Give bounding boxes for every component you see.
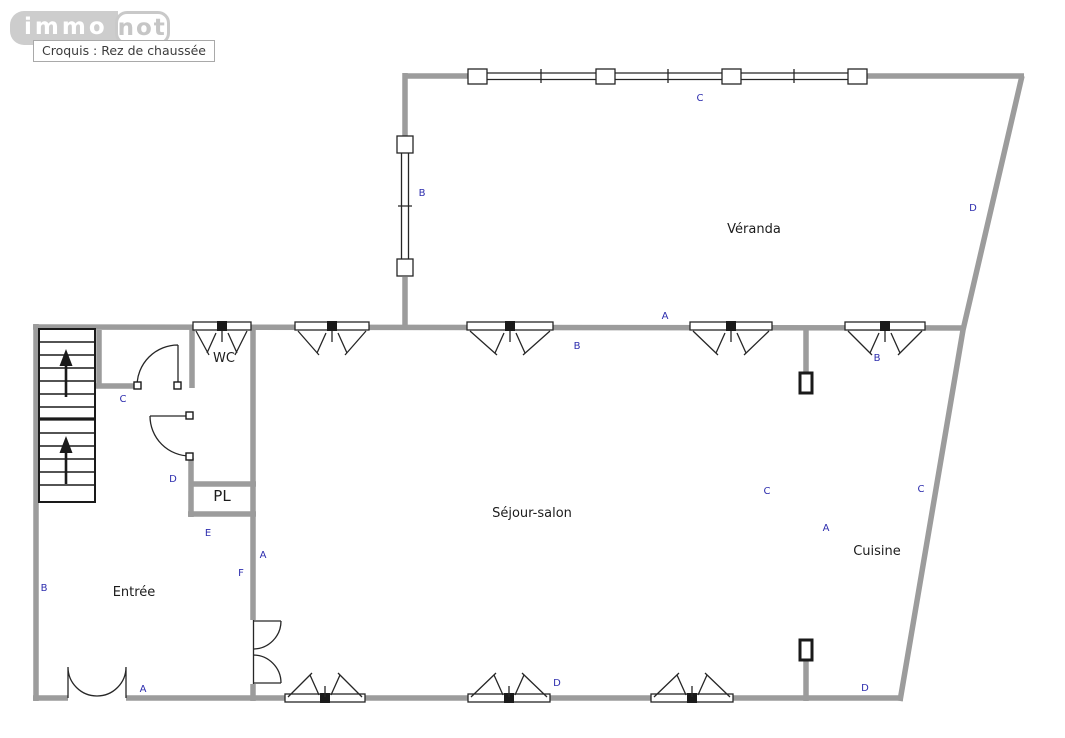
window-bottom-2 <box>468 673 550 703</box>
window-sejour-2 <box>467 321 553 355</box>
floor-plan-page: immo not Croquis : Rez de chaussée <box>0 0 1065 738</box>
window-sejour-1 <box>295 321 369 355</box>
cuisine-partition-caps <box>800 373 812 660</box>
window-bottom-3 <box>651 673 733 703</box>
dim-letter-sejour-north: A <box>662 311 669 322</box>
dim-letter-veranda-left: B <box>419 188 426 199</box>
room-label-cuisine: Cuisine <box>853 544 901 559</box>
door-sejour-double <box>253 620 281 684</box>
dim-letter-entrance-door: A <box>140 684 147 695</box>
dim-letter-sejour-window-left: B <box>574 341 581 352</box>
dim-letter-hall-door: D <box>169 474 177 485</box>
interior-walls <box>96 327 806 701</box>
room-label-wc: WC <box>213 351 235 366</box>
plan-caption: Croquis : Rez de chaussée <box>33 40 215 62</box>
dim-letter-cuisine: A <box>823 523 830 534</box>
dim-letter-bay-top: C <box>697 93 704 104</box>
dim-letter-sejour-east: C <box>764 486 771 497</box>
dim-letter-bottom-center: D <box>553 678 561 689</box>
room-label-pl: PL <box>213 487 231 505</box>
partition-cap-bottom <box>800 640 812 660</box>
window-cuisine-north <box>845 321 925 355</box>
dim-letter-right-wall-upper: D <box>969 203 977 214</box>
room-label-sejour: Séjour-salon <box>492 506 572 521</box>
dimension-letters: C B D A B B C D C C A E A F B D A D <box>41 93 978 695</box>
dim-letter-left-wall: B <box>41 583 48 594</box>
dim-letter-sejour-window-right: B <box>874 353 881 364</box>
room-label-veranda: Véranda <box>727 222 781 237</box>
partition-cap-top <box>800 373 812 393</box>
floor-plan-drawing: Véranda WC PL Séjour-salon Cuisine Entré… <box>0 0 1065 738</box>
door-entrance-double <box>68 667 126 698</box>
staircase <box>39 329 95 502</box>
dim-letter-bottom-right: D <box>861 683 869 694</box>
room-labels: Véranda WC PL Séjour-salon Cuisine Entré… <box>113 222 901 600</box>
bay-window-top <box>468 69 867 84</box>
dim-letter-pl: E <box>205 528 211 539</box>
veranda-left-window <box>397 136 413 276</box>
window-wc <box>193 321 251 355</box>
room-label-entree: Entrée <box>113 585 156 600</box>
door-wc <box>134 345 181 389</box>
window-bottom-1 <box>285 673 365 703</box>
window-sejour-3 <box>690 321 772 355</box>
door-hall <box>150 412 193 460</box>
dim-letter-entree: F <box>238 568 244 579</box>
dim-letter-sejour-west: A <box>260 550 267 561</box>
dim-letter-cuisine-west: C <box>918 484 925 495</box>
dim-letter-stair-niche: C <box>120 394 127 405</box>
